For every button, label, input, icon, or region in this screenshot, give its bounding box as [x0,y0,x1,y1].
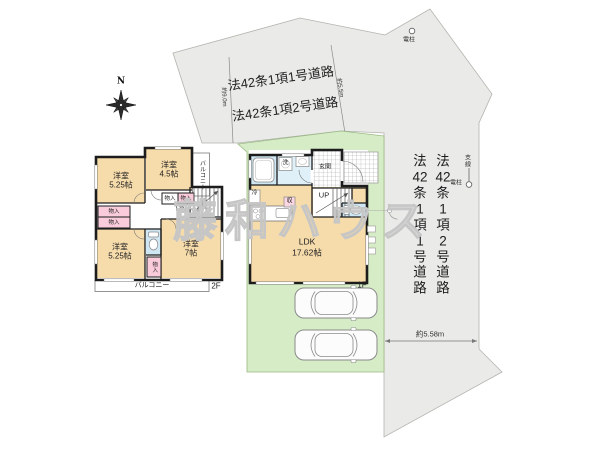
compass-icon [106,90,136,120]
electric-pole-top-icon [409,28,415,34]
floor-plan-canvas: 法42条1項1号道路 法42条1項2号道路 法 42 条 1 項 1 号 道 路… [0,0,600,450]
site-plan-drawing [0,0,600,450]
floor2-plan [95,147,224,292]
